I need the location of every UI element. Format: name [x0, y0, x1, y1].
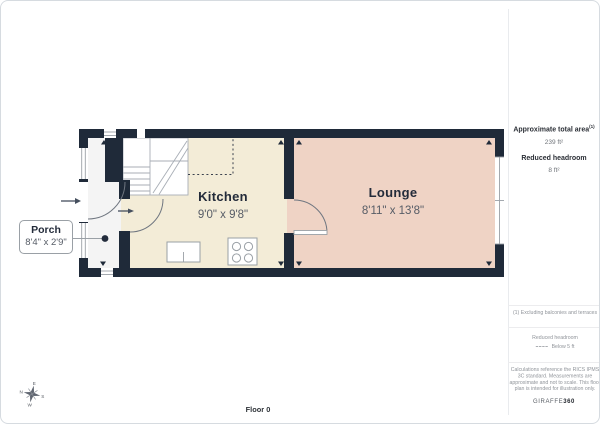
- compass-w: W: [28, 402, 33, 407]
- porch-callout: Porch 8'4" x 2'9": [19, 220, 73, 254]
- area-footnote: (1) Excluding balconies and terraces: [509, 310, 600, 316]
- kitchen-label: Kitchen: [198, 189, 248, 204]
- sidebar-rule-3: [508, 362, 600, 363]
- sidebar-rule-2: [508, 327, 600, 328]
- legend-title: Reduced headroom: [509, 335, 600, 341]
- stairs-icon: [123, 138, 188, 195]
- disclaimer: Calculations reference the RICS IPMS 3C …: [509, 367, 600, 392]
- porch-dimensions: 8'4" x 2'9": [20, 237, 72, 248]
- sidebar-rule-1: [508, 305, 600, 306]
- compass-e: E: [33, 381, 36, 386]
- reduced-headroom-line-icon: [536, 346, 548, 347]
- sidebar-stats: Approximate total area(1) 239 ft² Reduce…: [509, 124, 599, 174]
- legend-label: Below 5 ft: [552, 344, 575, 350]
- legend: Reduced headroom Below 5 ft: [509, 335, 600, 350]
- brand-suffix: 360: [563, 399, 575, 405]
- brand-name: GIRAFFE: [533, 399, 563, 405]
- entry-arrow-icon: [61, 198, 81, 204]
- sidebar-divider: [508, 9, 509, 415]
- lounge-label: Lounge: [369, 185, 418, 200]
- reduced-headroom-value: 8 ft²: [509, 167, 599, 174]
- total-area-note-ref: (1): [589, 124, 595, 129]
- compass-icon: N E S W: [20, 381, 45, 408]
- brand-logo: GIRAFFE360: [509, 399, 599, 405]
- floor-label: Floor 0: [246, 405, 271, 414]
- kitchen-dimensions: 9'0" x 9'8": [198, 209, 248, 221]
- floor-plan-drawing: Kitchen 9'0" x 9'8" Lounge 8'11" x 13'8"…: [1, 1, 600, 424]
- floor-plan-page: Kitchen 9'0" x 9'8" Lounge 8'11" x 13'8"…: [0, 0, 600, 424]
- total-area-heading: Approximate total area(1): [509, 124, 599, 135]
- hob-icon: [228, 238, 257, 265]
- compass-n: N: [20, 389, 23, 394]
- lounge-floor: [287, 136, 499, 271]
- sink-icon: [167, 242, 200, 262]
- lounge-dimensions: 8'11" x 13'8": [362, 205, 424, 217]
- compass-s: S: [41, 394, 44, 399]
- reduced-headroom-heading: Reduced headroom: [509, 155, 599, 163]
- total-area-value: 239 ft²: [509, 139, 599, 146]
- porch-label: Porch: [20, 224, 72, 237]
